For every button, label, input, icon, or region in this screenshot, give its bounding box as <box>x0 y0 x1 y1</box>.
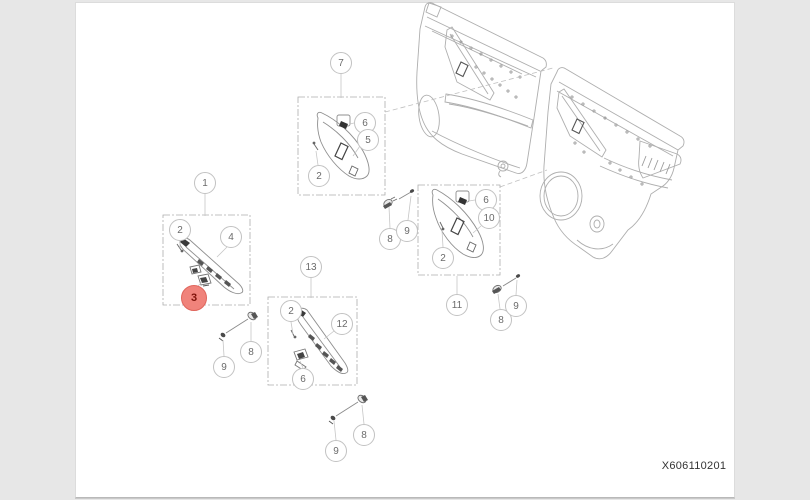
callout-2-rear-switch-screw[interactable]: 2 <box>432 247 454 269</box>
screw-pair-b <box>219 311 258 341</box>
diagram-line-art <box>0 0 810 500</box>
callout-3-clip-highlighted[interactable]: 3 <box>181 285 207 311</box>
clip-drawing-front-switch <box>337 115 350 129</box>
clip-drawing-rear <box>294 349 308 370</box>
callout-8-screw-b[interactable]: 8 <box>240 341 262 363</box>
callout-10-rear-switch-bezel[interactable]: 10 <box>478 207 500 229</box>
clip-drawing-rear-switch <box>456 191 469 205</box>
diagram-code-label: X606110201 <box>648 460 740 472</box>
callout-8-screw-c[interactable]: 8 <box>353 424 375 446</box>
callout-7-front-switch-assembly[interactable]: 7 <box>330 52 352 74</box>
callout-6-rear-sill-clip[interactable]: 6 <box>292 368 314 390</box>
front-door-panel-drawing <box>416 3 546 177</box>
callout-9-bolt-a[interactable]: 9 <box>396 220 418 242</box>
leader-lines <box>385 68 553 187</box>
callout-1-front-sill-assembly[interactable]: 1 <box>194 172 216 194</box>
rear-door-panel-drawing <box>540 68 684 259</box>
callout-2-rear-sill-screw[interactable]: 2 <box>280 300 302 322</box>
callout-12-rear-sill-garnish[interactable]: 12 <box>331 313 353 335</box>
callout-11-rear-switch-assembly[interactable]: 11 <box>446 294 468 316</box>
callout-5-front-switch-bezel[interactable]: 5 <box>357 129 379 151</box>
callout-9-bolt-c[interactable]: 9 <box>325 440 347 462</box>
callout-4-front-sill-garnish[interactable]: 4 <box>220 226 242 248</box>
callout-9-bolt-b[interactable]: 9 <box>213 356 235 378</box>
callout-2-front-switch-screw[interactable]: 2 <box>308 165 330 187</box>
callout-13-rear-sill-assembly[interactable]: 13 <box>300 256 322 278</box>
callout-9-bolt-d[interactable]: 9 <box>505 295 527 317</box>
parts-catalog-page: { "page": { "part_number_label": "X60611… <box>0 0 810 500</box>
callout-2-front-sill-screw[interactable]: 2 <box>169 219 191 241</box>
